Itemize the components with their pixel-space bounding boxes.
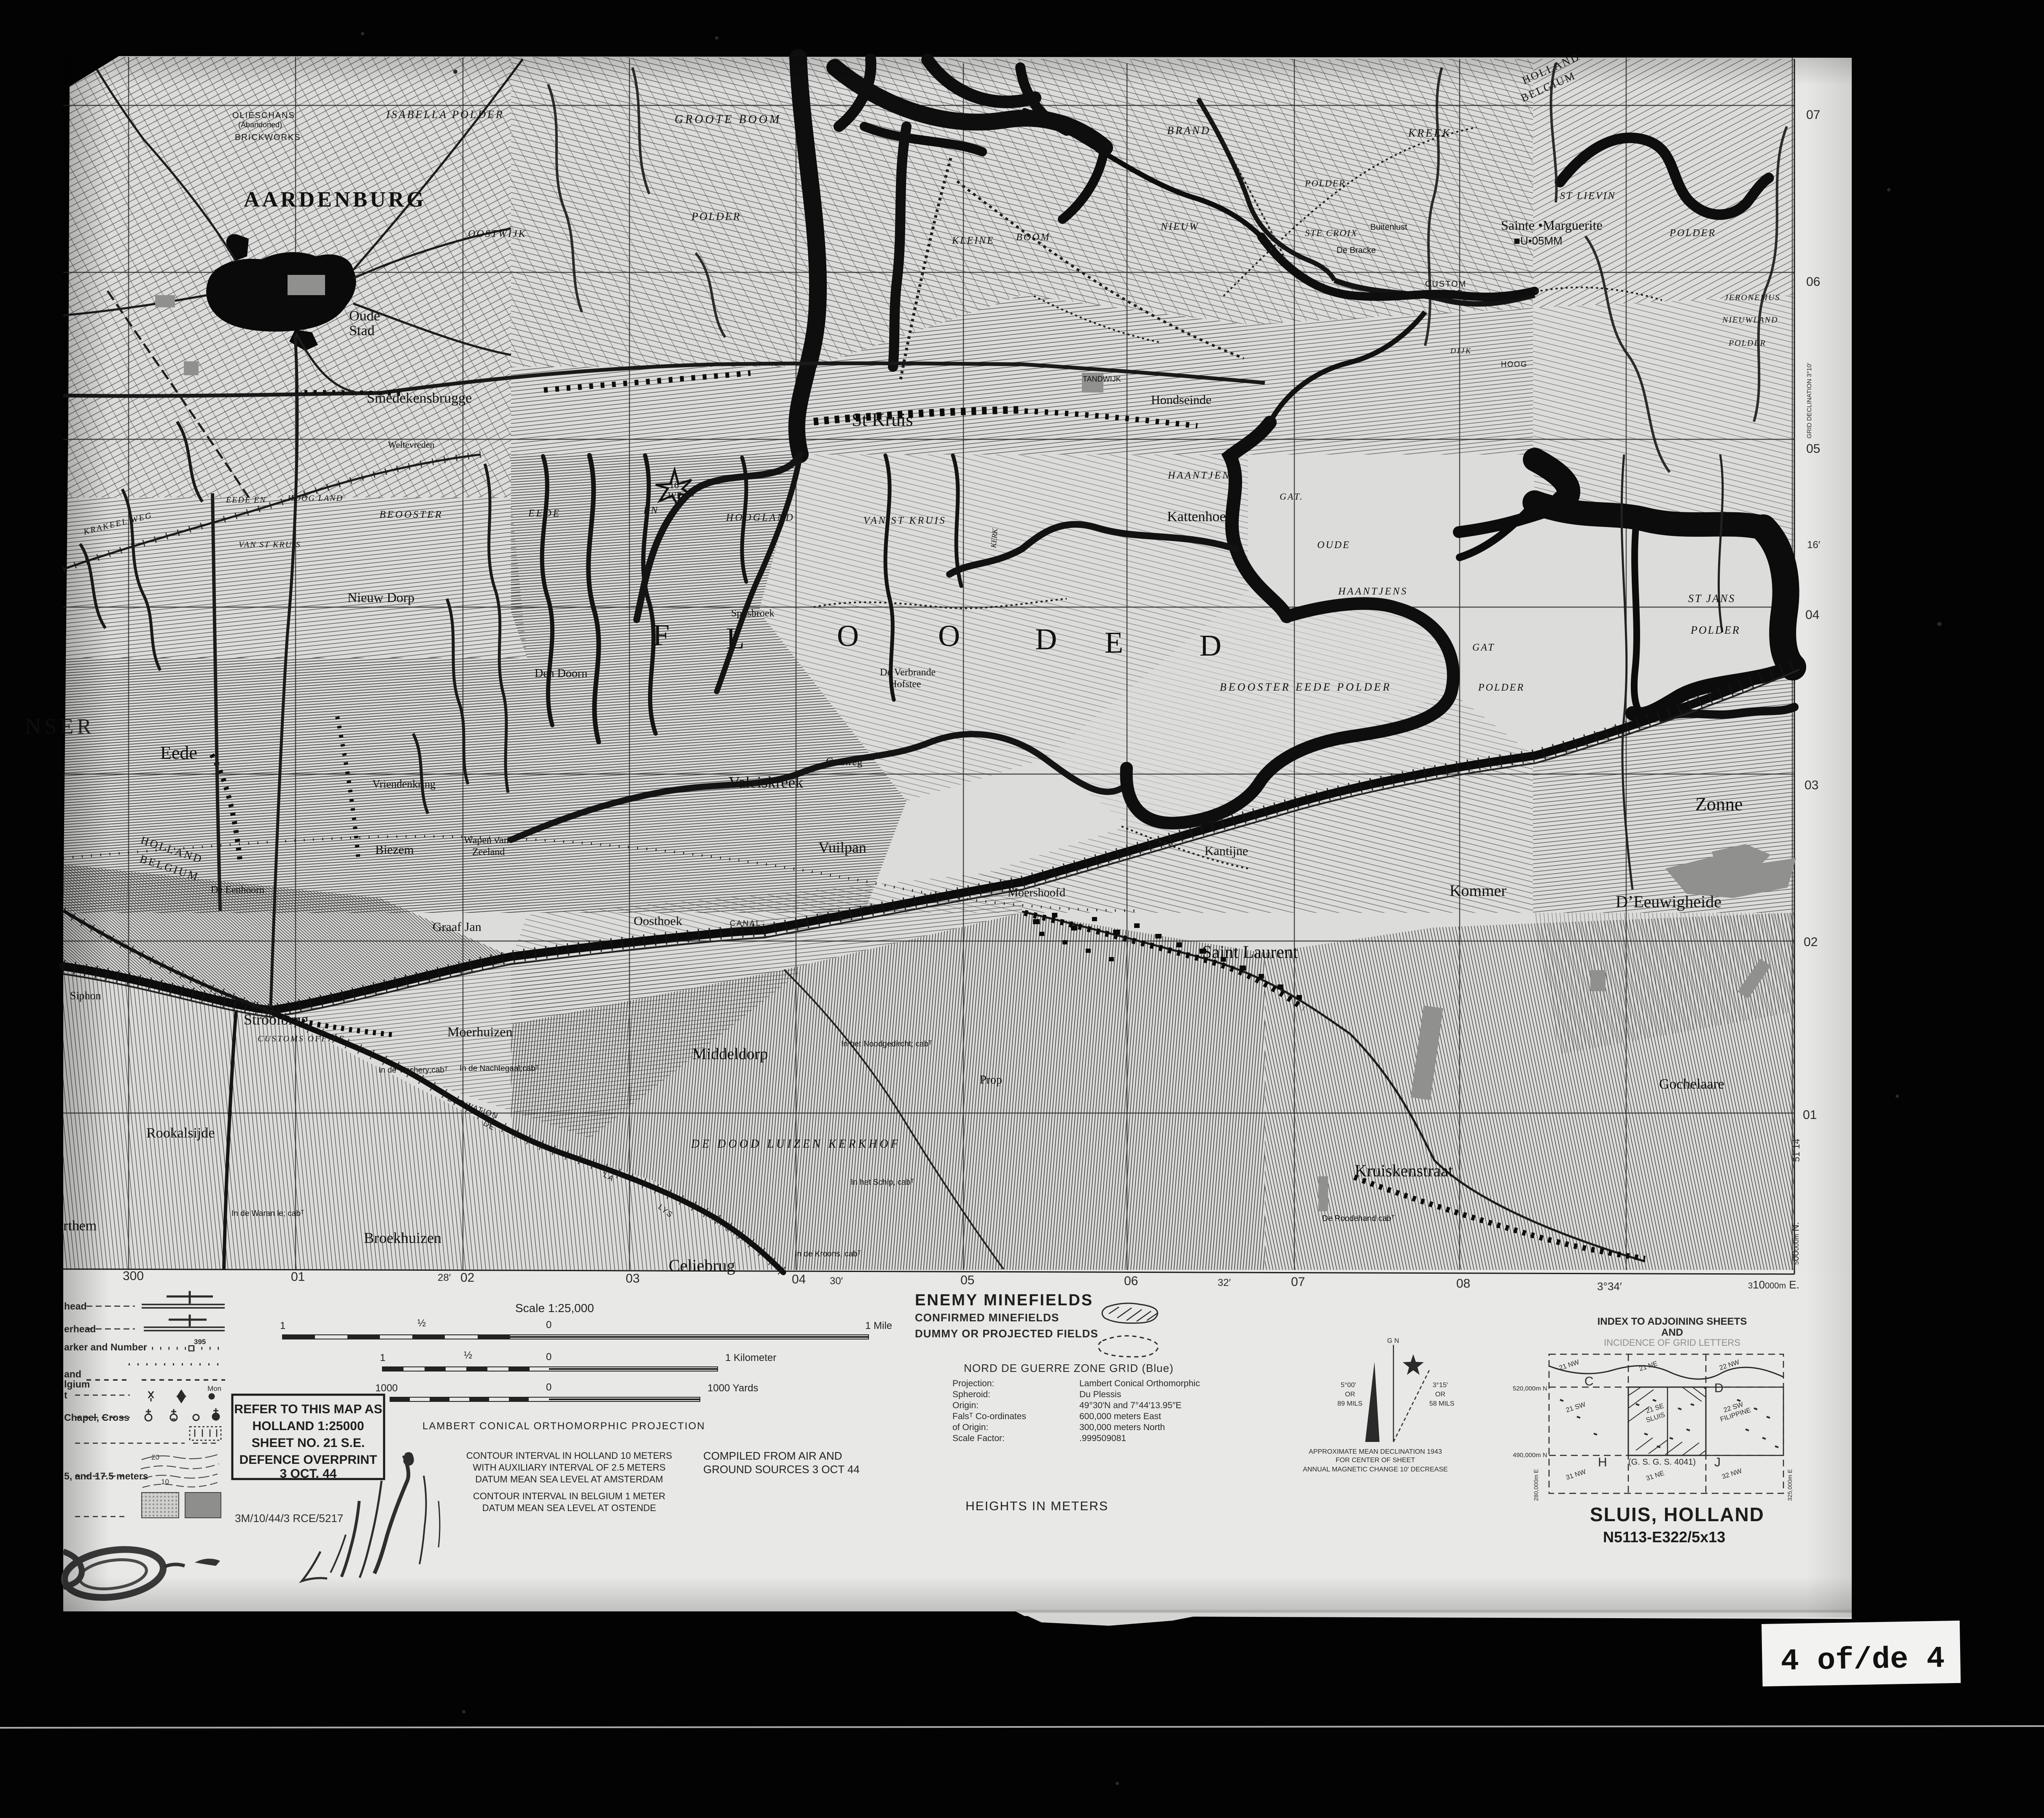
svg-text:07: 07 — [1291, 1275, 1305, 1289]
svg-text:Projection:: Projection: — [952, 1379, 994, 1388]
svg-text:Moerhuizen: Moerhuizen — [447, 1024, 513, 1039]
svg-text:Oude: Oude — [349, 308, 380, 324]
svg-text:(G. S. G. S. 4041): (G. S. G. S. 4041) — [1628, 1458, 1696, 1467]
svg-text:J: J — [1714, 1455, 1721, 1469]
svg-text:1 Mile: 1 Mile — [865, 1320, 892, 1331]
svg-text:GROUND SOURCES 3 OCT 44: GROUND SOURCES 3 OCT 44 — [703, 1463, 860, 1476]
svg-text:GAT: GAT — [1472, 642, 1495, 653]
svg-text:VAN ST KRUIS: VAN ST KRUIS — [863, 515, 946, 526]
svg-text:Kantijne: Kantijne — [1205, 844, 1248, 858]
svg-text:NORD DE GUERRE ZONE GRID (Blu: NORD DE GUERRE ZONE GRID (Blue) — [964, 1362, 1174, 1374]
svg-text:Smedekensbrugge: Smedekensbrugge — [367, 390, 472, 406]
svg-text:3 OCT. 44: 3 OCT. 44 — [280, 1467, 336, 1481]
svg-text:10: 10 — [161, 1478, 169, 1486]
svg-text:280,000m E: 280,000m E — [1533, 1469, 1539, 1501]
svg-text:1: 1 — [280, 1320, 285, 1331]
svg-text:CONTOUR INTERVAL IN HOLLAND 10: CONTOUR INTERVAL IN HOLLAND 10 METERS — [466, 1450, 672, 1461]
svg-text:In de Kroons, cabᵀ: In de Kroons, cabᵀ — [795, 1250, 861, 1259]
svg-text:32′: 32′ — [1218, 1277, 1231, 1288]
svg-text:28′: 28′ — [438, 1272, 451, 1283]
svg-text:ST JANS: ST JANS — [1688, 592, 1735, 605]
svg-text:600,000 meters East: 600,000 meters East — [1079, 1412, 1161, 1421]
svg-text:20: 20 — [151, 1453, 159, 1461]
svg-text:HOOG: HOOG — [1501, 360, 1528, 368]
svg-text:REFER TO THIS MAP AS: REFER TO THIS MAP AS — [234, 1402, 382, 1416]
svg-text:395: 395 — [194, 1338, 206, 1346]
svg-text:INDEX TO ADJOINING SHEETS: INDEX TO ADJOINING SHEETS — [1598, 1316, 1747, 1327]
svg-text:H: H — [1598, 1455, 1607, 1469]
svg-text:300: 300 — [123, 1269, 144, 1283]
svg-text:51 14: 51 14 — [1791, 1139, 1802, 1162]
svg-text:Oosthoek: Oosthoek — [634, 914, 682, 928]
svg-text:JERONEMUS: JERONEMUS — [1724, 293, 1780, 302]
svg-text:VAN ST KRUIS: VAN ST KRUIS — [239, 540, 301, 549]
svg-text:BEOOSTER EEDE POLDER: BEOOSTER EEDE POLDER — [1220, 681, 1392, 693]
svg-text:02: 02 — [460, 1271, 474, 1285]
svg-text:Strooibrug: Strooibrug — [244, 1011, 309, 1028]
svg-text:Kommer: Kommer — [1450, 882, 1506, 900]
svg-text:CONTOUR INTERVAL IN BELGIUM 1: CONTOUR INTERVAL IN BELGIUM 1 METER — [473, 1491, 665, 1501]
svg-text:HEIGHTS IN METERS: HEIGHTS IN METERS — [966, 1499, 1108, 1513]
svg-text:LAMBERT CONICAL ORTHOMORPHIC P: LAMBERT CONICAL ORTHOMORPHIC PROJECTION — [422, 1420, 705, 1432]
svg-text:POLDER: POLDER — [1728, 339, 1766, 348]
svg-text:Stad: Stad — [349, 323, 374, 339]
svg-text:C: C — [1584, 1374, 1594, 1388]
svg-text:BRAND: BRAND — [1167, 124, 1211, 137]
svg-text:3°15′: 3°15′ — [1433, 1382, 1448, 1389]
svg-text:KERK: KERK — [989, 528, 999, 549]
svg-text:Spheroid:: Spheroid: — [952, 1390, 990, 1399]
svg-text:CUSTOMS OFFICE: CUSTOMS OFFICE — [258, 1034, 345, 1043]
svg-text:OLIESCHANS: OLIESCHANS — [232, 111, 295, 120]
svg-text:Prop: Prop — [980, 1073, 1002, 1086]
svg-text:DE DOOD LUIZEN KERKHOF: DE DOOD LUIZEN KERKHOF — [691, 1138, 901, 1151]
svg-text:BRICKWORKS: BRICKWORKS — [235, 133, 301, 142]
svg-text:58 MILS: 58 MILS — [1429, 1400, 1455, 1407]
svg-text:D: D — [1035, 622, 1057, 656]
svg-text:Eede: Eede — [160, 742, 197, 763]
svg-text:½: ½ — [464, 1350, 472, 1361]
svg-text:89 MILS: 89 MILS — [1337, 1400, 1363, 1407]
svg-text:490,000m N: 490,000m N — [1513, 1452, 1547, 1459]
svg-text:Celiebrug: Celiebrug — [669, 1256, 735, 1275]
svg-text:WITH AUXILIARY INTERVAL OF 2.5: WITH AUXILIARY INTERVAL OF 2.5 METERS — [473, 1462, 665, 1473]
svg-text:30′: 30′ — [830, 1275, 843, 1287]
svg-text:KLEINE: KLEINE — [952, 235, 995, 246]
svg-text:AARDENBURG: AARDENBURG — [244, 188, 426, 212]
svg-text:OUDE: OUDE — [1317, 540, 1350, 551]
svg-text:of Origin:: of Origin: — [952, 1423, 988, 1432]
svg-text:0: 0 — [546, 1382, 551, 1393]
svg-text:St Kruis: St Kruis — [852, 409, 913, 430]
svg-text:SLUIS, HOLLAND: SLUIS, HOLLAND — [1590, 1503, 1764, 1525]
svg-text:EN: EN — [643, 505, 659, 516]
svg-text:TANDWIJK: TANDWIJK — [1083, 375, 1121, 383]
svg-text:520,000m N: 520,000m N — [1513, 1385, 1547, 1392]
svg-text:Coxweg: Coxweg — [826, 756, 863, 768]
svg-text:NIEUWLAND: NIEUWLAND — [1722, 315, 1778, 325]
svg-text:1 Kilometer: 1 Kilometer — [725, 1352, 776, 1363]
svg-text:325,000m E: 325,000m E — [1786, 1469, 1793, 1501]
svg-text:Vuilpan: Vuilpan — [818, 839, 866, 856]
svg-text:Sainte •Marguerite: Sainte •Marguerite — [1501, 218, 1603, 233]
svg-text:DATUM MEAN SEA LEVEL AT OSTEND: DATUM MEAN SEA LEVEL AT OSTENDE — [482, 1503, 656, 1513]
svg-text:POLDER: POLDER — [1669, 228, 1716, 239]
svg-text:4 of/de 4: 4 of/de 4 — [1780, 1641, 1945, 1679]
svg-text:POLDER: POLDER — [1690, 624, 1740, 636]
svg-text:De Verbrande: De Verbrande — [880, 667, 936, 678]
svg-text:Middeldorp: Middeldorp — [692, 1045, 768, 1063]
svg-text:POLDER: POLDER — [691, 210, 741, 223]
svg-text:03: 03 — [626, 1272, 640, 1286]
svg-text:Rookalsijde: Rookalsijde — [146, 1125, 215, 1141]
svg-text:FOR CENTER OF SHEET: FOR CENTER OF SHEET — [1336, 1457, 1415, 1464]
svg-text:0: 0 — [546, 1351, 551, 1363]
svg-text:Den Doorn: Den Doorn — [535, 667, 587, 680]
svg-text:De Bracke: De Bracke — [1337, 246, 1376, 255]
svg-text:SHEET NO. 21 S.E.: SHEET NO. 21 S.E. — [252, 1436, 365, 1450]
svg-text:06: 06 — [1124, 1274, 1138, 1288]
svg-text:In de Waran le; cabᵀ: In de Waran le; cabᵀ — [231, 1209, 304, 1218]
svg-text:Buitenlust: Buitenlust — [1370, 223, 1407, 232]
svg-text:05: 05 — [960, 1273, 974, 1287]
svg-text:D’Eeuwigheide: D’Eeuwigheide — [1616, 892, 1721, 911]
svg-text:ENEMY MINEFIELDS: ENEMY MINEFIELDS — [915, 1291, 1093, 1309]
svg-text:DEFENCE OVERPRINT: DEFENCE OVERPRINT — [239, 1453, 377, 1467]
svg-text:Du Plessis: Du Plessis — [1079, 1390, 1121, 1399]
svg-text:Scale 1:25,000: Scale 1:25,000 — [515, 1302, 594, 1315]
svg-text:E: E — [1105, 626, 1123, 659]
svg-text:Wapen van: Wapen van — [464, 835, 509, 846]
svg-text:GAT.: GAT. — [1280, 491, 1304, 502]
svg-text:Graaf Jan: Graaf Jan — [433, 920, 481, 934]
svg-text:CONFIRMED MINEFIELDS: CONFIRMED MINEFIELDS — [915, 1311, 1059, 1324]
svg-text:½: ½ — [417, 1318, 426, 1329]
svg-text:D: D — [1714, 1381, 1724, 1395]
svg-text:Saint Laurent: Saint Laurent — [1202, 943, 1298, 962]
svg-text:HOLLAND 1:25000: HOLLAND 1:25000 — [252, 1419, 364, 1433]
svg-text:N5113-E322/5x13: N5113-E322/5x13 — [1603, 1528, 1725, 1546]
svg-text:APPROXIMATE MEAN DECLINATION 1: APPROXIMATE MEAN DECLINATION 1943 — [1309, 1448, 1442, 1455]
svg-text:ST LIEVIN: ST LIEVIN — [1560, 191, 1616, 202]
svg-text:NIEUW: NIEUW — [1160, 221, 1199, 232]
svg-text:Origin:: Origin: — [952, 1401, 979, 1410]
svg-text:BOOM: BOOM — [1016, 232, 1050, 243]
svg-text:DIJK: DIJK — [1450, 347, 1472, 355]
svg-text:KREEK: KREEK — [1408, 127, 1451, 139]
svg-text:In de Vischery;cabᵀ: In de Vischery;cabᵀ — [379, 1066, 448, 1075]
svg-text:3°34′: 3°34′ — [1597, 1280, 1622, 1293]
svg-text:In het Schip, cabᵀ: In het Schip, cabᵀ — [851, 1178, 914, 1187]
svg-text:COMPILED FROM AIR AND: COMPILED FROM AIR AND — [703, 1450, 842, 1462]
svg-text:F: F — [653, 618, 670, 652]
svg-text:De Eenhoorn: De Eenhoorn — [211, 885, 264, 896]
svg-text:D: D — [1200, 629, 1221, 662]
svg-text:OR: OR — [1345, 1391, 1355, 1398]
svg-text:Zonne: Zonne — [1695, 794, 1743, 815]
svg-text:Falsᵀ Co-ordinates: Falsᵀ Co-ordinates — [952, 1412, 1026, 1421]
svg-text:BEOOSTER: BEOOSTER — [379, 509, 443, 520]
svg-text:OOSTWIJK: OOSTWIJK — [468, 229, 527, 239]
svg-text:INCIDENCE OF GRID LETTERS: INCIDENCE OF GRID LETTERS — [1604, 1337, 1740, 1348]
svg-text:Broekhuizen: Broekhuizen — [364, 1229, 441, 1246]
svg-text:Moershoofd: Moershoofd — [1008, 886, 1065, 899]
svg-text:ANNUAL MAGNETIC CHANGE 10′ DEC: ANNUAL MAGNETIC CHANGE 10′ DECREASE — [1303, 1466, 1448, 1473]
svg-text:Lambert Conical Orthomorphic: Lambert Conical Orthomorphic — [1079, 1379, 1200, 1388]
svg-text:CUSTOM: CUSTOM — [1425, 280, 1466, 289]
svg-text:De Roodehand cabᵀ: De Roodehand cabᵀ — [1322, 1214, 1395, 1223]
svg-text:STE CROIX: STE CROIX — [1305, 228, 1358, 238]
svg-text:Zeeland: Zeeland — [472, 847, 505, 858]
svg-text:HOOGLAND: HOOGLAND — [726, 512, 795, 523]
svg-text:ISABELLA POLDER: ISABELLA POLDER — [386, 108, 504, 121]
svg-text:O: O — [837, 619, 859, 653]
svg-text:CANAL: CANAL — [730, 919, 761, 928]
svg-text:In de Nachtegaal;cabᵀ: In de Nachtegaal;cabᵀ — [460, 1064, 539, 1073]
svg-text:Spitsbroek: Spitsbroek — [731, 608, 775, 619]
svg-text:0: 0 — [546, 1319, 551, 1331]
svg-text:HAANTJENS: HAANTJENS — [1167, 470, 1237, 481]
svg-text:1000 Yards: 1000 Yards — [707, 1382, 758, 1394]
svg-text:Kattenhoek: Kattenhoek — [1167, 509, 1233, 524]
svg-text:Biezem: Biezem — [375, 843, 414, 857]
svg-text:5°00′: 5°00′ — [1341, 1382, 1356, 1389]
svg-text:L: L — [726, 621, 745, 655]
svg-text:Valeiskreek: Valeiskreek — [729, 774, 803, 791]
svg-text:1: 1 — [380, 1352, 385, 1363]
svg-text:16: 16 — [670, 480, 679, 490]
svg-text:.999509081: .999509081 — [1079, 1433, 1126, 1443]
svg-text:HAANTJENS: HAANTJENS — [1338, 586, 1408, 597]
svg-text:01: 01 — [291, 1270, 305, 1284]
svg-text:Gochelaare: Gochelaare — [1659, 1076, 1724, 1092]
svg-text:EEDE: EEDE — [528, 508, 561, 519]
svg-text:POLDER: POLDER — [1478, 682, 1525, 693]
svg-text:■U•05MM: ■U•05MM — [1514, 234, 1563, 247]
svg-text:04: 04 — [792, 1272, 806, 1286]
svg-text:300,000 meters North: 300,000 meters North — [1079, 1423, 1165, 1432]
svg-text:HOOG LAND: HOOG LAND — [287, 494, 343, 503]
svg-text:O: O — [938, 619, 960, 653]
svg-text:Nieuw Dorp: Nieuw Dorp — [347, 590, 414, 605]
svg-text:G N: G N — [1387, 1337, 1399, 1345]
svg-text:Vriendenkring: Vriendenkring — [372, 778, 436, 790]
svg-text:Kruiskenstraat: Kruiskenstraat — [1355, 1161, 1453, 1180]
svg-text:DATUM MEAN SEA LEVEL AT AMSTER: DATUM MEAN SEA LEVEL AT AMSTERDAM — [475, 1474, 663, 1485]
svg-text:3M/10/44/3 RCE/5217: 3M/10/44/3 RCE/5217 — [235, 1512, 343, 1525]
svg-text:08: 08 — [1456, 1277, 1470, 1291]
svg-text:POLDER: POLDER — [1304, 178, 1345, 188]
svg-text:GROOTE BOOM: GROOTE BOOM — [675, 113, 781, 126]
svg-text:OR: OR — [1435, 1391, 1445, 1398]
svg-text:HOUSE: HOUSE — [1429, 289, 1463, 298]
svg-text:AND: AND — [1661, 1327, 1683, 1338]
svg-text:EEDE EN: EEDE EN — [226, 495, 266, 505]
svg-text:Weltevreden: Weltevreden — [388, 439, 435, 450]
svg-text:Mon: Mon — [207, 1385, 221, 1393]
svg-text:1000: 1000 — [375, 1382, 398, 1394]
svg-text:Hofstee: Hofstee — [890, 679, 921, 690]
svg-text:DUMMY OR PROJECTED FIELDS: DUMMY OR PROJECTED FIELDS — [915, 1327, 1098, 1340]
svg-text:In het Noodgedircht; cabᵀ: In het Noodgedircht; cabᵀ — [841, 1040, 932, 1049]
svg-text:49°30′N and 7°44′13.95″E: 49°30′N and 7°44′13.95″E — [1079, 1401, 1181, 1410]
svg-text:(Abandoned): (Abandoned) — [238, 121, 282, 129]
svg-text:WP: WP — [668, 490, 682, 500]
svg-text:Hondseinde: Hondseinde — [1151, 393, 1211, 407]
svg-text:Scale Factor:: Scale Factor: — [952, 1433, 1005, 1443]
